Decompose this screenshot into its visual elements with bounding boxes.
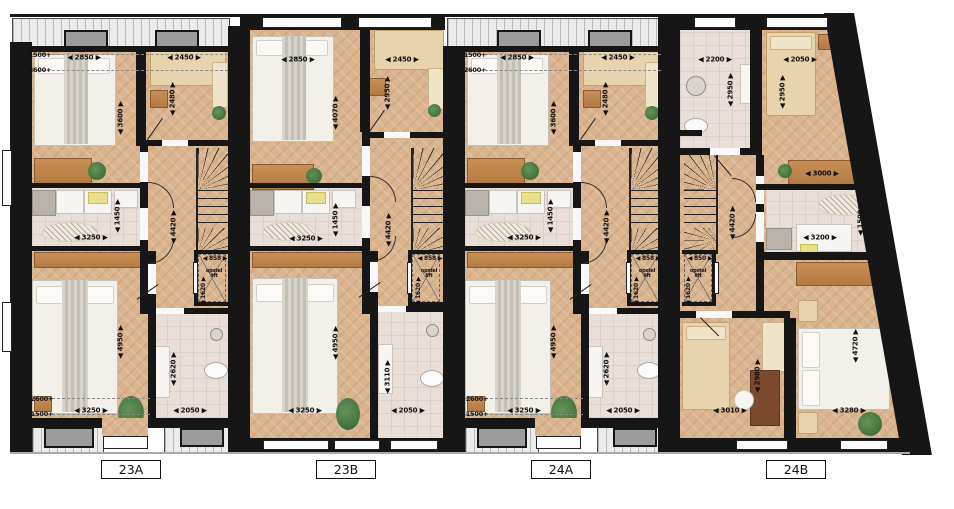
unit-label-text: 23B [334, 462, 358, 477]
dimension-label: 1500+ [466, 411, 489, 418]
dimension-label: ◀ 4420 ▶ [604, 210, 611, 244]
dimension-label: 2600+ [31, 396, 54, 403]
dimension-label: ◀ 4950 ▶ [118, 325, 125, 359]
dimension-label: opstel lift [205, 269, 223, 279]
unit-label-24b: 24B [766, 460, 826, 479]
dimension-label: ◀ 1450 ▶ [333, 203, 340, 237]
dimension-label: ◀ 2050 ▶ [391, 408, 425, 415]
unit-label-text: 24A [549, 462, 573, 477]
dimension-label: ◀ 2980 ▶ [755, 359, 762, 393]
dimension-label: ◀ 2050 ▶ [783, 57, 817, 64]
unit-label-text: 23A [119, 462, 143, 477]
dimension-label: ◀ 858 ▶ [203, 256, 228, 262]
dimension-label: ◀ 3000 ▶ [805, 171, 839, 178]
dimension-label: ◀ 2950 ▶ [780, 75, 787, 109]
dimension-label: ◀ 2850 ▶ [281, 57, 315, 64]
dimension-label: ◀ 3250 ▶ [507, 235, 541, 242]
dimension-label: ◀ 2480 ▶ [603, 82, 610, 116]
dimension-label: ◀ 1620 ▶ [634, 277, 640, 306]
dimension-label: ◀ 1620 ▶ [201, 277, 207, 306]
dimension-label: ◀ 4070 ▶ [333, 96, 340, 130]
dimension-label: ◀ 2620 ▶ [604, 352, 611, 386]
dimension-label: ◀ 2450 ▶ [601, 55, 635, 62]
dimension-label: ◀ 3600 ▶ [551, 101, 558, 135]
dimension-label: 2600+ [464, 67, 487, 74]
dimension-label: ◀ 4420 ▶ [171, 210, 178, 244]
dimension-label: opstel lift [420, 269, 438, 279]
dimension-layer: 1500+2600+◀ 2850 ▶◀ 2450 ▶◀ 2480 ▶◀ 3600… [0, 0, 954, 509]
dimension-label: ◀ 3250 ▶ [288, 408, 322, 415]
dimension-label: ◀ 4720 ▶ [853, 329, 860, 363]
dimension-label: ◀ 4950 ▶ [551, 325, 558, 359]
dimension-label: opstel lift [638, 269, 656, 279]
dimension-label: ◀ 1620 ▶ [416, 277, 422, 306]
dimension-label: ◀ 2850 ▶ [500, 55, 534, 62]
dimension-label: ◀ 2950 ▶ [728, 73, 735, 107]
dimension-label: ◀ 2480 ▶ [170, 82, 177, 116]
dimension-label: ◀ 2620 ▶ [171, 352, 178, 386]
dimension-label: ◀ 858 ▶ [418, 256, 443, 262]
dimension-label: 1500+ [31, 411, 54, 418]
dimension-label: ◀ 1450 ▶ [115, 199, 122, 233]
dimension-label: ◀ 2450 ▶ [385, 57, 419, 64]
dimension-label: ◀ 4420 ▶ [730, 206, 737, 240]
dimension-label: ◀ 3110 ▶ [385, 360, 392, 394]
dimension-label: ◀ 3600 ▶ [118, 101, 125, 135]
dimension-label: ◀ 850 ▶ [688, 256, 713, 262]
dimension-label: 2600+ [466, 396, 489, 403]
dimension-label: ◀ 1500 ▶ [858, 202, 865, 236]
dimension-label: ◀ 3010 ▶ [713, 408, 747, 415]
dimension-label: ◀ 2050 ▶ [173, 408, 207, 415]
unit-label-23a: 23A [101, 460, 161, 479]
dimension-label: ◀ 2050 ▶ [606, 408, 640, 415]
unit-label-24a: 24A [531, 460, 591, 479]
dimension-label: ◀ 3200 ▶ [803, 235, 837, 242]
dimension-label: ◀ 1450 ▶ [548, 199, 555, 233]
dimension-label: ◀ 1620 ▶ [686, 277, 692, 306]
dimension-label: ◀ 2850 ▶ [67, 55, 101, 62]
dimension-label: ◀ 4950 ▶ [333, 326, 340, 360]
dimension-label: 2600+ [29, 67, 52, 74]
dimension-label: ◀ 3250 ▶ [74, 408, 108, 415]
dimension-label: 1500+ [29, 52, 52, 59]
dimension-label: ◀ 3280 ▶ [832, 408, 866, 415]
dimension-label: ◀ 2950 ▶ [385, 76, 392, 110]
unit-label-23b: 23B [316, 460, 376, 479]
floor-plan: 1500+2600+◀ 2850 ▶◀ 2450 ▶◀ 2480 ▶◀ 3600… [0, 0, 954, 509]
unit-label-text: 24B [784, 462, 808, 477]
dimension-label: ◀ 3250 ▶ [289, 236, 323, 243]
dimension-label: ◀ 4420 ▶ [386, 213, 393, 247]
dimension-label: 1500+ [464, 52, 487, 59]
dimension-label: ◀ 3250 ▶ [507, 408, 541, 415]
dimension-label: ◀ 858 ▶ [636, 256, 661, 262]
dimension-label: ◀ 3250 ▶ [74, 235, 108, 242]
dimension-label: ◀ 2200 ▶ [698, 57, 732, 64]
dimension-label: ◀ 2450 ▶ [167, 55, 201, 62]
